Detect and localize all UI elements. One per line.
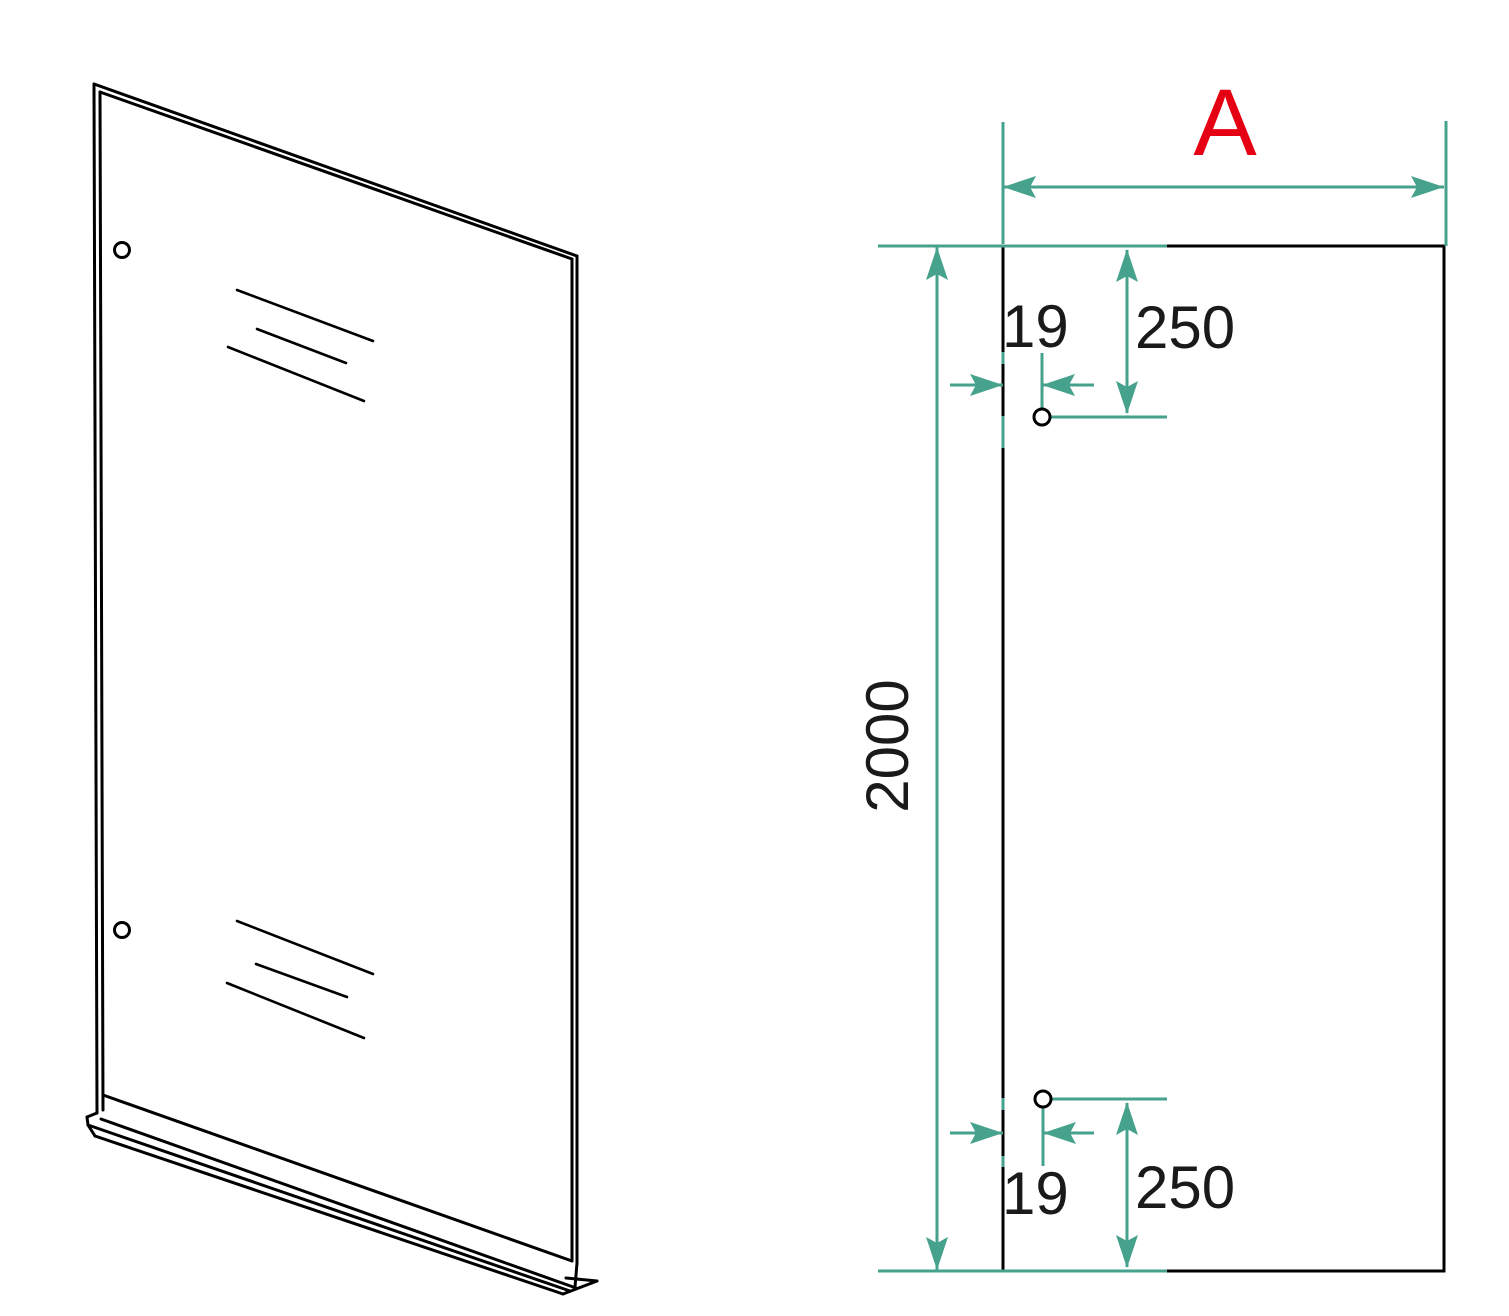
shine-mark xyxy=(227,983,364,1038)
glass-panel-outline-3d xyxy=(94,84,577,1263)
channel-front-lip xyxy=(88,1125,570,1291)
shine-mark xyxy=(237,290,373,341)
channel-foot-edge xyxy=(563,1281,597,1294)
top-hole-dimension: 19 250 xyxy=(950,249,1235,448)
top-hole-top-offset-label: 250 xyxy=(1135,294,1235,361)
perspective-view xyxy=(87,84,597,1294)
mounting-hole-bottom-3d xyxy=(115,923,130,938)
shine-mark xyxy=(228,347,364,401)
shower-glass-panel-drawing: A 2000 xyxy=(0,0,1509,1316)
bottom-hole-dimension: 19 250 xyxy=(950,1098,1235,1268)
mounting-hole-top-3d xyxy=(115,243,130,258)
width-dimension-label: A xyxy=(1193,70,1257,176)
top-hole-edge-offset-label: 19 xyxy=(1002,293,1069,360)
height-dimension: 2000 xyxy=(854,246,1167,1271)
channel-front-bottom xyxy=(95,1136,563,1294)
height-dimension-label: 2000 xyxy=(854,679,921,812)
mounting-hole-bottom-front xyxy=(1035,1091,1051,1107)
panel-left-edge-inner xyxy=(100,92,103,1110)
channel-back-lip xyxy=(101,1119,576,1288)
floor-channel-3d xyxy=(87,1113,597,1294)
panel-left-edge-outer xyxy=(94,84,97,1113)
width-dimension: A xyxy=(1003,70,1446,246)
mounting-hole-top-front xyxy=(1034,409,1050,425)
shine-mark xyxy=(257,329,346,363)
panel-top-edge-inner xyxy=(100,92,572,259)
shine-mark xyxy=(237,921,373,974)
panel-top-edge-outer xyxy=(94,84,577,256)
panel-bottom-edge xyxy=(103,1095,572,1261)
bottom-hole-bottom-offset-label: 250 xyxy=(1135,1154,1235,1221)
shine-mark xyxy=(256,964,347,997)
channel-foot-top xyxy=(566,1278,597,1281)
front-view: A 2000 xyxy=(854,70,1446,1271)
technical-drawing-page: A 2000 xyxy=(0,0,1509,1316)
channel-right-cap xyxy=(575,1263,577,1287)
glass-panel-front-outline xyxy=(1003,246,1444,1271)
bottom-hole-edge-offset-label: 19 xyxy=(1002,1160,1069,1227)
channel-left-cap-top xyxy=(87,1113,97,1117)
glass-shine-marks xyxy=(227,290,373,1038)
